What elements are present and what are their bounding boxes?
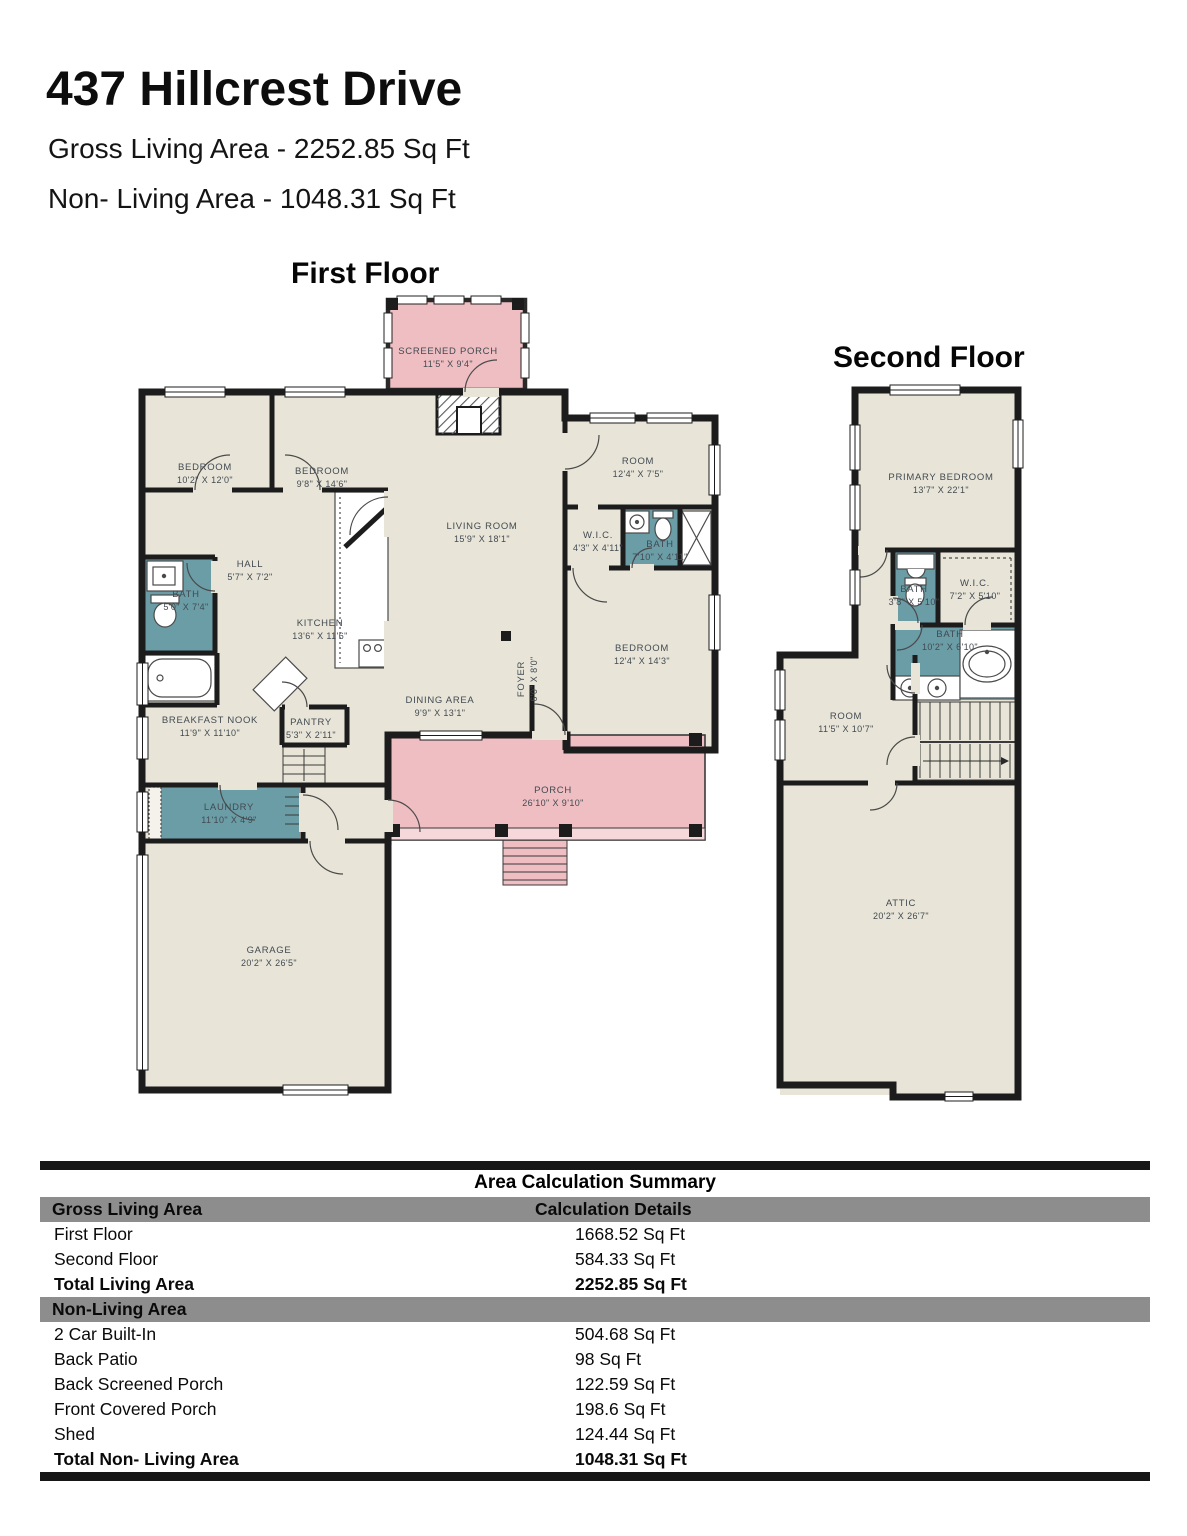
room-label-dining-area: DINING AREA 9'9" X 13'1" <box>406 694 475 720</box>
support-post <box>501 631 511 641</box>
gross-header-row: Gross Living Area Calculation Details <box>40 1197 1150 1222</box>
room-label-porch: PORCH 26'10" X 9'10" <box>522 784 583 810</box>
room-label-bath-left: BATH 5'0" X 7'4" <box>163 588 208 614</box>
first-floor-heading: First Floor <box>291 257 439 291</box>
room-label-breakfast-nook: BREAKFAST NOOK 11'9" X 11'10" <box>162 714 258 740</box>
calculation-details-header: Calculation Details <box>535 1197 692 1222</box>
summary-row: Back Patio 98 Sq Ft <box>40 1347 1150 1372</box>
second-floor-heading: Second Floor <box>833 341 1025 375</box>
summary-row: First Floor 1668.52 Sq Ft <box>40 1222 1150 1247</box>
summary-title: Area Calculation Summary <box>40 1170 1150 1197</box>
room-label-bedroom-right: BEDROOM 12'4" X 14'3" <box>614 642 670 668</box>
room-label-bedroom-mid: BEDROOM 9'8" X 14'6" <box>295 465 349 491</box>
summary-row: Front Covered Porch 198.6 Sq Ft <box>40 1397 1150 1422</box>
room-label-wic-sf: W.I.C. 7'2" X 5'10" <box>950 577 1001 603</box>
room-label-living-room: LIVING ROOM 15'9" X 18'1" <box>446 520 517 546</box>
page-title: 437 Hillcrest Drive <box>46 62 462 117</box>
room-label-room-sf: ROOM 11'5" X 10'7" <box>818 710 873 736</box>
table-bottom-bar <box>40 1472 1150 1481</box>
room-label-foyer: FOYER 6'0" X 8'0" <box>515 656 541 701</box>
room-label-room-ff: ROOM 12'4" X 7'5" <box>613 455 664 481</box>
room-label-bath-hall: BATH 7'10" X 4'11" <box>632 538 687 564</box>
room-label-garage: GARAGE 20'2" X 26'5" <box>241 944 297 970</box>
non-living-subtitle: Non- Living Area - 1048.31 Sq Ft <box>48 183 456 215</box>
room-label-kitchen: KITCHEN 13'6" X 11'6" <box>292 617 347 643</box>
non-living-header-label: Non-Living Area <box>40 1299 187 1319</box>
table-top-bar <box>40 1161 1150 1170</box>
room-label-bath-primary: BATH 10'2" X 6'10" <box>922 628 978 654</box>
room-label-pantry: PANTRY 5'3" X 2'11" <box>286 716 336 742</box>
gross-living-subtitle: Gross Living Area - 2252.85 Sq Ft <box>48 133 470 165</box>
summary-row-total-living: Total Living Area 2252.85 Sq Ft <box>40 1272 1150 1297</box>
gross-header-label: Gross Living Area <box>40 1199 202 1219</box>
room-label-wic-ff: W.I.C. 4'3" X 4'11" <box>573 529 623 555</box>
room-label-attic: ATTIC 20'2" X 26'7" <box>873 897 929 923</box>
summary-row: Second Floor 584.33 Sq Ft <box>40 1247 1150 1272</box>
room-label-bath-small: BATH 3'8" X 5'10" <box>889 583 940 609</box>
room-label-hall: HALL 5'7" X 7'2" <box>227 558 272 584</box>
room-label-bedroom-left: BEDROOM 10'2" X 12'0" <box>177 461 233 487</box>
summary-row: 2 Car Built-In 504.68 Sq Ft <box>40 1322 1150 1347</box>
room-label-screened-porch: SCREENED PORCH 11'5" X 9'4" <box>398 345 498 371</box>
summary-row: Shed 124.44 Sq Ft <box>40 1422 1150 1447</box>
summary-row: Back Screened Porch 122.59 Sq Ft <box>40 1372 1150 1397</box>
non-living-header-row: Non-Living Area <box>40 1297 1150 1322</box>
summary-row-total-non-living: Total Non- Living Area 1048.31 Sq Ft <box>40 1447 1150 1472</box>
area-summary-table: Area Calculation Summary Gross Living Ar… <box>40 1161 1150 1481</box>
room-label-laundry: LAUNDRY 11'10" X 4'9" <box>201 801 256 827</box>
room-label-primary-bedroom: PRIMARY BEDROOM 13'7" X 22'1" <box>888 471 993 497</box>
